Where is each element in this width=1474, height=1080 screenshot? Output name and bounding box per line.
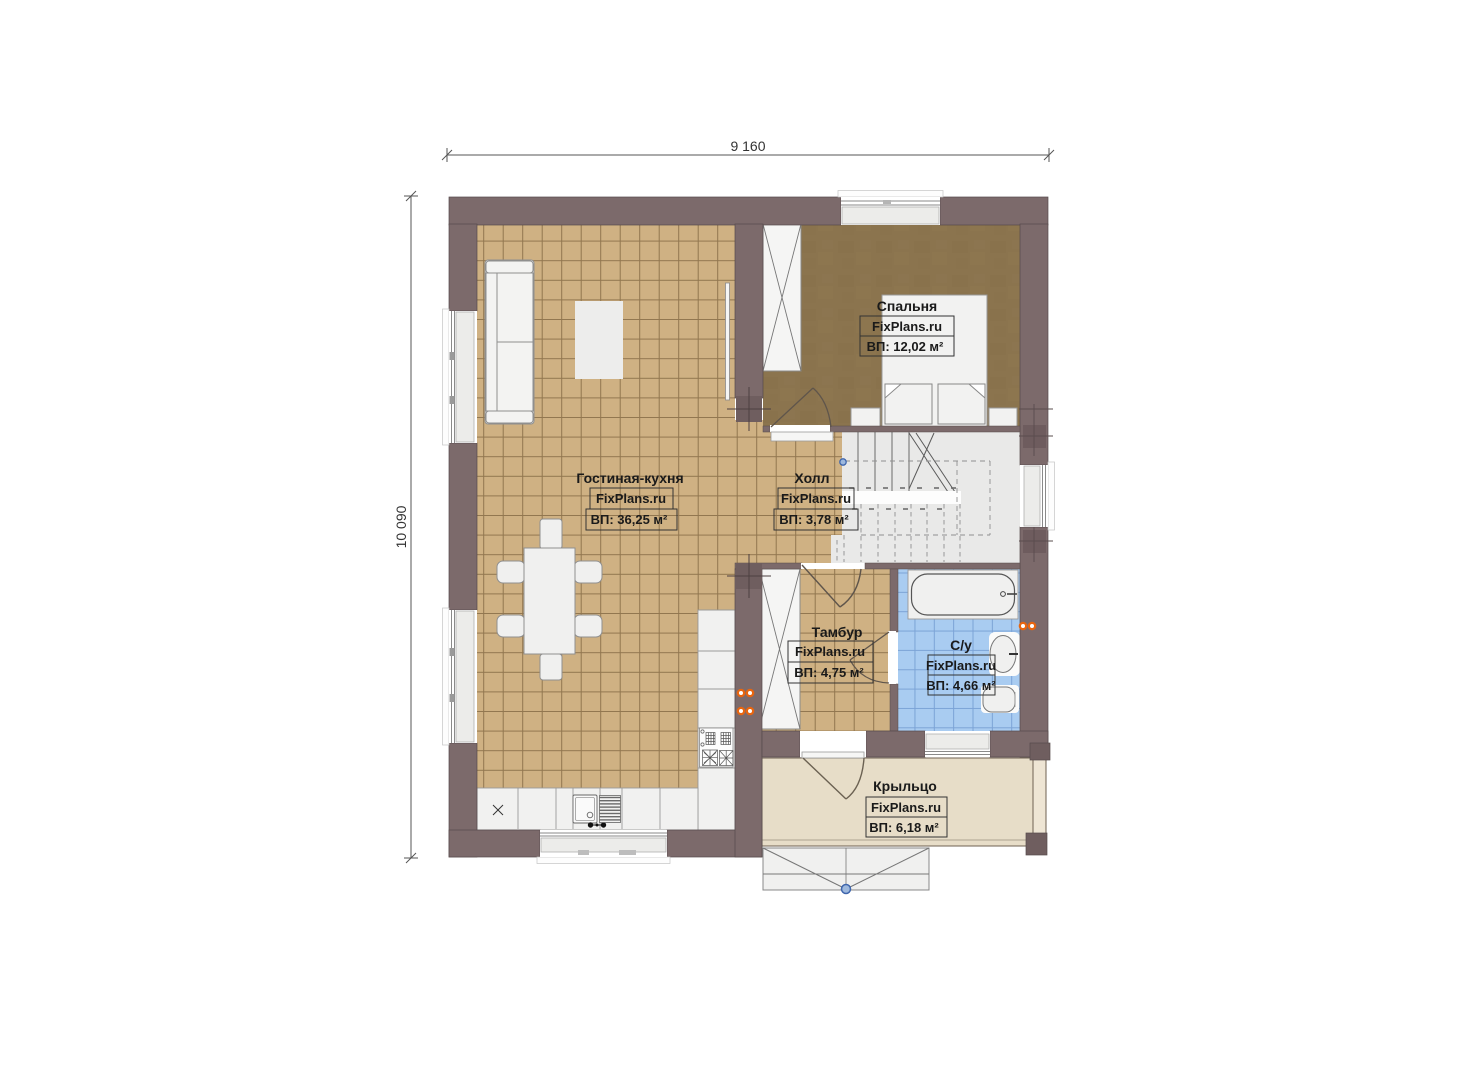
svg-text:ВП: 4,66 м²: ВП: 4,66 м²: [926, 678, 996, 693]
svg-text:10 090: 10 090: [393, 505, 409, 548]
svg-text:Гостиная-кухня: Гостиная-кухня: [576, 470, 683, 486]
svg-text:Холл: Холл: [794, 470, 829, 486]
svg-text:ВП: 6,18 м²: ВП: 6,18 м²: [869, 820, 939, 835]
svg-text:FixPlans.ru: FixPlans.ru: [795, 644, 865, 659]
svg-text:FixPlans.ru: FixPlans.ru: [872, 319, 942, 334]
svg-text:FixPlans.ru: FixPlans.ru: [926, 658, 996, 673]
svg-text:ВП: 36,25 м²: ВП: 36,25 м²: [591, 512, 668, 527]
svg-text:9 160: 9 160: [730, 138, 765, 154]
svg-text:FixPlans.ru: FixPlans.ru: [781, 491, 851, 506]
svg-text:ВП: 12,02 м²: ВП: 12,02 м²: [867, 339, 944, 354]
svg-text:Тамбур: Тамбур: [812, 624, 863, 640]
svg-text:FixPlans.ru: FixPlans.ru: [871, 800, 941, 815]
svg-text:Спальня: Спальня: [877, 298, 937, 314]
svg-text:FixPlans.ru: FixPlans.ru: [596, 491, 666, 506]
svg-text:ВП: 4,75 м²: ВП: 4,75 м²: [794, 665, 864, 680]
svg-text:Крыльцо: Крыльцо: [873, 778, 937, 794]
svg-text:ВП: 3,78 м²: ВП: 3,78 м²: [779, 512, 849, 527]
svg-text:С/у: С/у: [950, 637, 972, 653]
